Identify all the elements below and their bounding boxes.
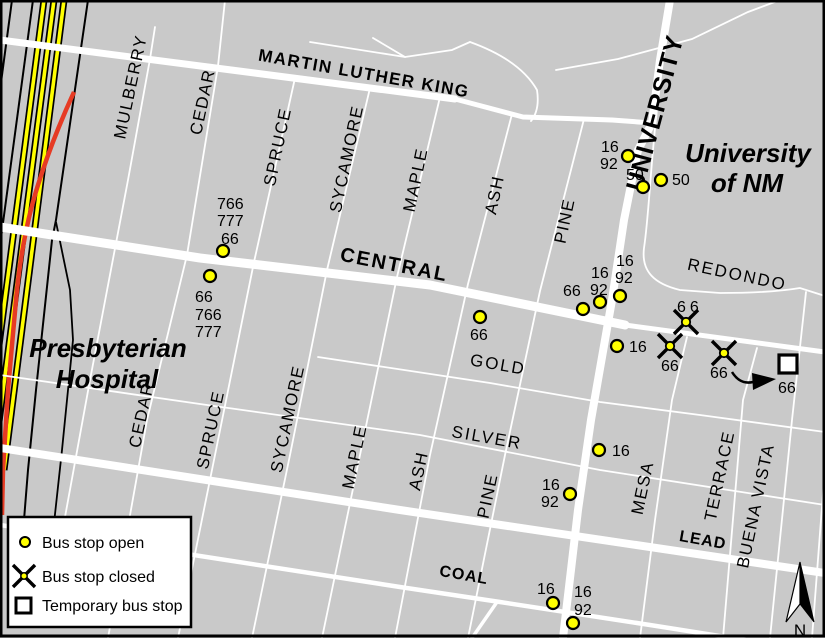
bus-stop-open-icon xyxy=(564,488,576,500)
route-label: 16 xyxy=(612,443,630,460)
map-canvas: MARTIN LUTHER KING CENTRAL REDONDO GOLD … xyxy=(0,0,825,638)
bus-stop-open-icon xyxy=(611,340,623,352)
route-label: 766 xyxy=(217,196,244,213)
bus-stop-open-icon xyxy=(622,150,634,162)
route-label: 66 xyxy=(221,231,239,248)
university-label-line1: University xyxy=(685,138,812,168)
bus-stop-open-icon xyxy=(655,174,667,186)
bus-stop-open-icon xyxy=(547,597,559,609)
bus-stop-open-icon xyxy=(577,303,589,315)
route-label: 50 xyxy=(626,167,644,184)
route-label: 16 xyxy=(601,139,619,156)
route-label: 766 xyxy=(195,307,222,324)
bus-stop-open-icon xyxy=(474,311,486,323)
route-label: 66 xyxy=(710,365,728,382)
route-label: 66 xyxy=(470,327,488,344)
legend-temporary-icon xyxy=(16,598,31,613)
bus-stop-open-icon xyxy=(593,444,605,456)
route-label: 92 xyxy=(590,282,608,299)
bus-stop-open: 50 xyxy=(655,172,690,189)
bus-stop-closed-dot xyxy=(720,349,728,357)
route-label: 16 xyxy=(542,477,560,494)
route-label: 16 xyxy=(616,253,634,270)
temporary-stop-icon xyxy=(779,355,797,373)
bus-stop-open-icon xyxy=(614,290,626,302)
legend: Bus stop open Bus stop closed Temporary … xyxy=(8,517,191,627)
legend-open-icon xyxy=(20,537,30,547)
bus-stop-closed-dot xyxy=(666,342,674,350)
bus-detour-map: MARTIN LUTHER KING CENTRAL REDONDO GOLD … xyxy=(0,0,825,638)
hospital-label-line1: Presbyterian xyxy=(29,333,187,363)
legend-temporary-label: Temporary bus stop xyxy=(42,598,183,615)
university-label-line2: of NM xyxy=(711,168,785,198)
route-label: 16 xyxy=(591,265,609,282)
route-label: 777 xyxy=(217,213,244,230)
route-label: 777 xyxy=(195,324,222,341)
route-label: 16 xyxy=(629,339,647,356)
route-label: 66 xyxy=(661,358,679,375)
route-label: 92 xyxy=(541,494,559,511)
route-label: 66 xyxy=(563,283,581,300)
route-label: 92 xyxy=(600,156,618,173)
route-label: 16 xyxy=(537,581,555,598)
bus-stop-closed-dot xyxy=(682,318,690,326)
route-label: 66 xyxy=(677,299,703,316)
route-label: 66 xyxy=(778,380,796,397)
hospital-label-line2: Hospital xyxy=(56,364,159,394)
legend-open-label: Bus stop open xyxy=(42,535,144,552)
route-label: 66 xyxy=(195,289,213,306)
legend-closed-dot xyxy=(21,573,27,579)
route-label: 92 xyxy=(615,270,633,287)
route-label: 92 xyxy=(574,602,592,619)
route-label: 16 xyxy=(574,584,592,601)
route-label: 50 xyxy=(672,172,690,189)
bus-stop-open-icon xyxy=(204,270,216,282)
legend-closed-label: Bus stop closed xyxy=(42,569,155,586)
